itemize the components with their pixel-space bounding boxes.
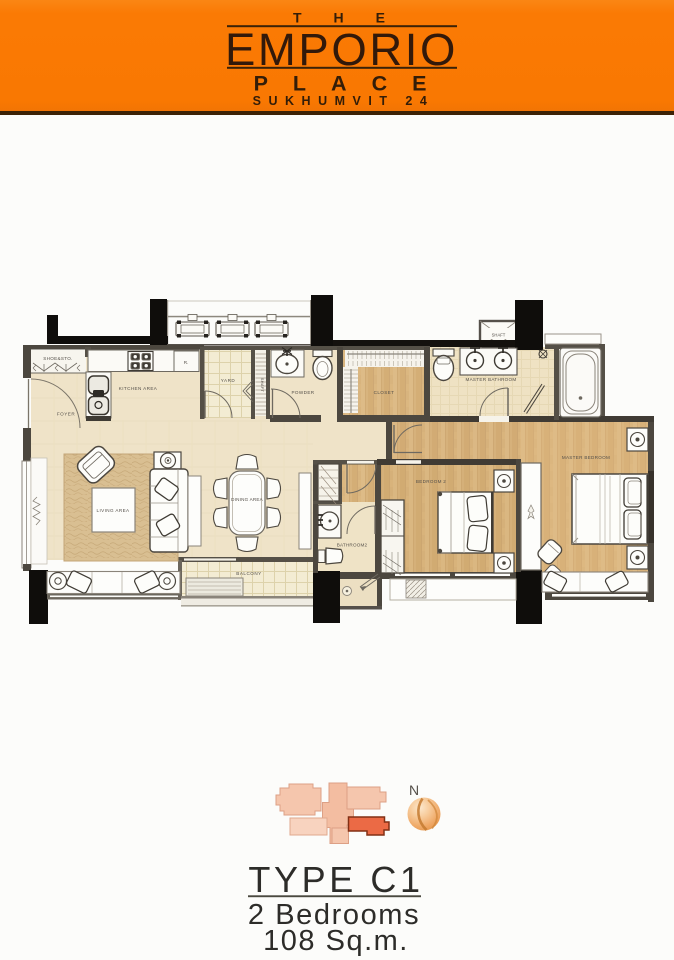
- svg-text:BATHROOM2: BATHROOM2: [337, 543, 368, 548]
- svg-text:CLOSET: CLOSET: [374, 390, 395, 395]
- svg-text:MASTER BATHROOM: MASTER BATHROOM: [465, 377, 516, 382]
- svg-text:BEDROOM 2: BEDROOM 2: [416, 479, 446, 484]
- svg-text:N: N: [409, 782, 419, 798]
- svg-text:R.: R.: [184, 360, 189, 365]
- svg-text:MASTER BEDROOM: MASTER BEDROOM: [562, 455, 610, 460]
- svg-text:SHAFT: SHAFT: [260, 378, 265, 393]
- svg-text:TYPE C1: TYPE C1: [248, 859, 423, 900]
- svg-text:BALCONY: BALCONY: [236, 571, 261, 576]
- svg-text:SHOE&STO.: SHOE&STO.: [43, 356, 72, 361]
- svg-text:DINING AREA: DINING AREA: [231, 497, 264, 502]
- svg-text:YARD: YARD: [221, 378, 236, 383]
- svg-text:FOYER: FOYER: [57, 412, 76, 417]
- svg-text:108 Sq.m.: 108 Sq.m.: [263, 925, 409, 957]
- svg-text:POWDER: POWDER: [291, 390, 314, 395]
- svg-text:LIVING AREA: LIVING AREA: [97, 508, 131, 513]
- svg-text:KITCHEN AREA: KITCHEN AREA: [119, 386, 158, 391]
- svg-text:SHAFT: SHAFT: [492, 333, 506, 338]
- svg-text:PLACE: PLACE: [254, 72, 452, 96]
- svg-text:SUKHUMVIT 24: SUKHUMVIT 24: [253, 94, 435, 108]
